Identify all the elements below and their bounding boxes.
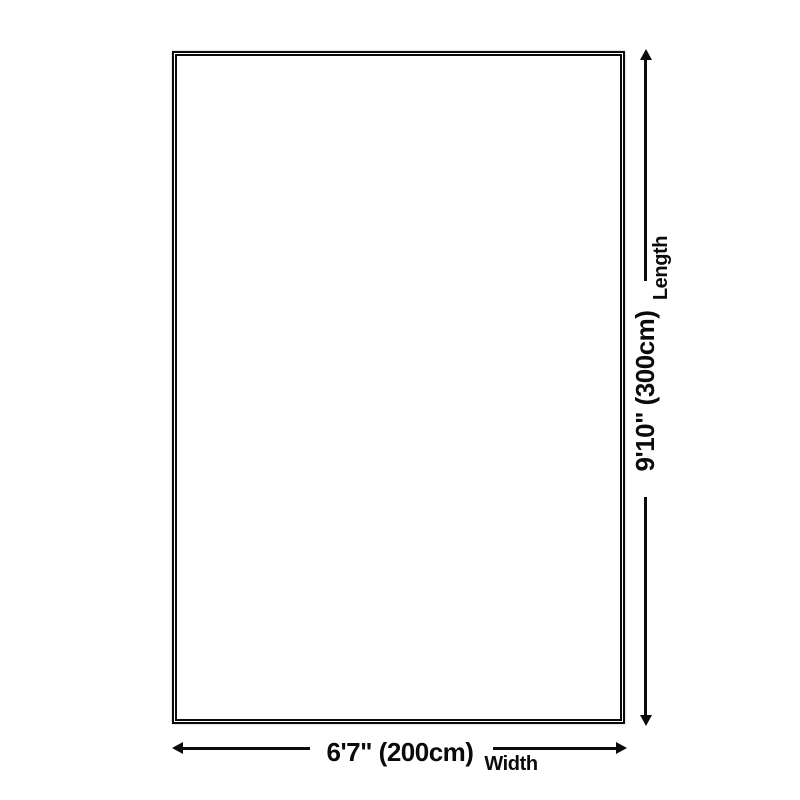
arrow-right-icon: [616, 742, 627, 754]
length-value: 9'10" (300cm): [632, 311, 658, 472]
length-dimension-line-upper: [644, 58, 647, 281]
width-label: Width: [484, 754, 537, 774]
length-dimension-line-lower: [644, 497, 647, 719]
arrow-down-icon: [640, 715, 652, 726]
rug-outline: [172, 51, 625, 724]
rug-inner-border: [175, 54, 622, 721]
length-label: Length: [651, 236, 671, 300]
rug-dimension-diagram: Length 9'10" (300cm) 6'7" (200cm) Width: [0, 0, 800, 800]
width-dimension-line-left: [181, 747, 310, 750]
width-value: 6'7" (200cm): [327, 739, 474, 765]
width-dimension-line-right: [493, 747, 617, 750]
